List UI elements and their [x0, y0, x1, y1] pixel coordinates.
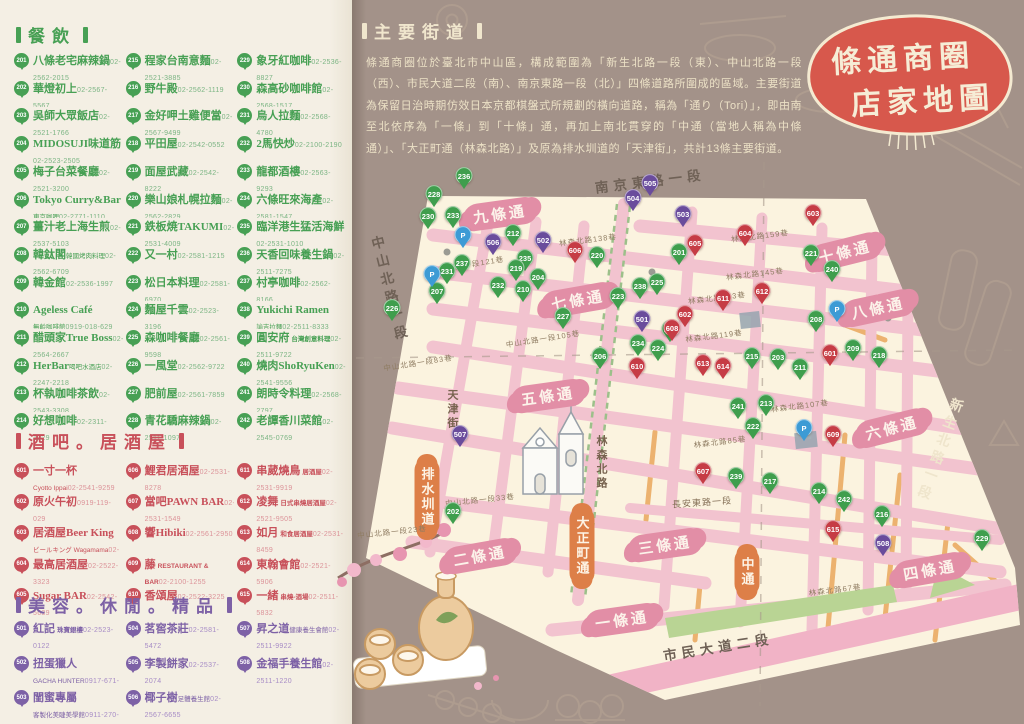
map-pin[interactable]: 506	[483, 233, 503, 259]
map-pin-number: 611	[713, 294, 733, 303]
list-item[interactable]: 218 平田屋02-2542-0552	[126, 135, 235, 163]
list-item[interactable]: 219 面屋武藏02-2542-8222	[126, 163, 235, 191]
store-name: 凌舞	[256, 496, 278, 508]
map-pin-number: 220	[587, 251, 607, 260]
store-phone: 02-2536-1997	[66, 281, 113, 288]
store-name: 吳師大眾飯店	[33, 110, 99, 122]
main-streets-description: 條通商圈位於臺北市中山區，構成範圍為「新生北路一段（東）、中山北路一段（西）、市…	[366, 53, 802, 160]
list-pin-icon: 236	[237, 247, 252, 262]
map-pin[interactable]: 609	[823, 425, 843, 451]
list-item[interactable]: 205 梅子台菜餐廳02-2521-3200	[14, 163, 123, 191]
store-name: 又一村	[145, 249, 178, 261]
list-item[interactable]: 206 Tokyo Curry&Bar東京咖哩02-2771-1110	[14, 191, 123, 219]
map-pin-number: 507	[450, 430, 470, 439]
store-name: Tokyo Curry&Bar	[33, 194, 121, 206]
list-item[interactable]: 202 華燈初上02-2567-5567	[14, 80, 123, 108]
list-item[interactable]: 504 茗窖茶莊02-2581-5472	[126, 620, 235, 655]
store-name: 金福手養生館	[256, 658, 322, 670]
store-name: MIDOSUJI味道筋	[33, 138, 121, 150]
map-pin[interactable]: 210	[513, 280, 533, 306]
map-pin-number: 213	[756, 399, 776, 408]
list-item[interactable]: 204 MIDOSUJI味道筋02-2523-2505	[14, 135, 123, 163]
map-pin-number: P	[453, 231, 473, 240]
list-item[interactable]: 242 老譚香川菜館02-2545-0769	[237, 412, 346, 440]
store-name: 野牛殿	[145, 83, 178, 95]
store-subname: 日式串燒居酒屋	[280, 500, 326, 507]
map-pin[interactable]: 615	[823, 520, 843, 546]
map-pin[interactable]: 215	[742, 347, 762, 373]
list-pin-icon: 201	[14, 53, 29, 68]
list-item[interactable]: 207 薑汁老上海生煎02-2537-5103	[14, 218, 123, 246]
store-name: 村亭咖啡	[256, 277, 300, 289]
list-item[interactable]: 508 金福手養生館02-2511-1220	[237, 655, 346, 690]
list-item[interactable]: 607 當吧PAWN BAR02-2531-1549	[126, 493, 235, 524]
map-pin[interactable]: 601	[820, 344, 840, 370]
map-pin[interactable]: 229	[972, 529, 992, 555]
title-line-2: 店家地圖	[850, 72, 996, 123]
list-pin-icon: 602	[14, 494, 29, 509]
map-pin-number: 608	[662, 324, 682, 333]
store-phone: 02-2581-1215	[178, 253, 225, 260]
list-item[interactable]: 241 朗時令料理02-2568-2797	[237, 385, 346, 413]
store-name: 松日本料理	[145, 277, 200, 289]
store-name: 面屋武藏	[145, 166, 189, 178]
list-item[interactable]: 615 一緒串燒-酒場02-2511-5832	[237, 587, 346, 618]
store-name: 好想咖啡	[33, 415, 77, 427]
map-pin-number: 612	[752, 287, 772, 296]
list-item[interactable]: 608 響Hibiki02-2561-2950	[126, 524, 235, 555]
title-bar-icon	[362, 23, 367, 39]
store-name: 龍都酒樓	[256, 166, 300, 178]
map-pin-number: 602	[675, 310, 695, 319]
map-pin-number: 239	[726, 472, 746, 481]
store-name: 朗時令料理	[256, 388, 311, 400]
list-pin-icon: 237	[237, 275, 252, 290]
map-pin-number: 215	[742, 352, 762, 361]
map-pin[interactable]: 202	[443, 502, 463, 528]
store-phone: 02-2542-0552	[178, 142, 225, 149]
list-pin-icon: 220	[126, 192, 141, 207]
map-pin-number: 609	[823, 430, 843, 439]
list-item[interactable]: 230 森高砂咖啡館02-2568-1517	[237, 80, 346, 108]
map-pin[interactable]: 208	[806, 310, 826, 336]
list-item[interactable]: 211 醋頭家True Boss02-2564-2667	[14, 329, 123, 357]
list-pin-icon: 507	[237, 621, 252, 636]
store-name: 六條旺來海產	[256, 194, 322, 206]
list-item[interactable]: 503 閨蜜專屬客製化美睫美學館0911-270-098	[14, 689, 123, 724]
store-name: 臨洋港生猛活海鮮	[256, 221, 344, 233]
list-item[interactable]: 213 杯執咖啡茶飲02-2543-3308	[14, 385, 123, 413]
store-name: 響Hibiki	[145, 527, 186, 539]
list-pin-icon: 219	[126, 164, 141, 179]
map-pin[interactable]: 606	[565, 241, 585, 267]
list-pin-icon: 239	[237, 330, 252, 345]
list-item[interactable]: 502 扭蛋獵人GACHA HUNTER0917-671-63	[14, 655, 123, 690]
section-title-dining: 餐飲	[16, 22, 88, 47]
list-pin-icon: 211	[14, 330, 29, 345]
store-name: HerBar	[33, 360, 69, 372]
map-pin-number: 604	[735, 229, 755, 238]
map-pin[interactable]: 240	[822, 260, 842, 286]
list-item[interactable]: 203 吳師大眾飯店02-2521-1766	[14, 107, 123, 135]
store-name: 藤	[145, 559, 156, 571]
section-title-beauty: 美容。休閒。精品	[16, 592, 232, 617]
map-pin[interactable]: 226	[382, 299, 402, 325]
map-pin-number: 603	[803, 209, 823, 218]
store-subtitle: GACHA HUNTER	[33, 678, 85, 685]
list-item[interactable]: 222 又一村02-2581-1215	[126, 246, 235, 274]
store-name: 森高砂咖啡館	[256, 83, 322, 95]
list-item[interactable]: 240 燒肉ShoRyuKen02-2541-9556	[237, 357, 346, 385]
map-pin-number: 601	[820, 349, 840, 358]
map-pin-number: 605	[685, 239, 705, 248]
list-item[interactable]: 231 烏人拉麵02-2568-4780	[237, 107, 346, 135]
map-pin[interactable]: 242	[834, 490, 854, 516]
store-name: 金好呷土雞便當	[145, 110, 222, 122]
store-subname: 和食居酒屋	[280, 531, 313, 538]
map-pin-number: 503	[673, 210, 693, 219]
map-pin-number: 219	[506, 264, 526, 273]
map-label: 中通	[735, 548, 760, 596]
list-item[interactable]: 209 韓金館02-2536-1997	[14, 274, 123, 302]
store-name: 平田屋	[145, 138, 178, 150]
list-pin-icon: 601	[14, 463, 29, 478]
title-bar-icon	[16, 597, 21, 613]
map-pin-number: 209	[843, 344, 863, 353]
list-pin-icon: 604	[14, 557, 29, 572]
map-pin[interactable]: 203	[768, 348, 788, 374]
list-pin-icon: 603	[14, 525, 29, 540]
title-bar-icon	[16, 27, 21, 43]
map-pin-number: 223	[608, 292, 628, 301]
list-item[interactable]: 609 藤RESTAURANT & BAR02-2100-1255	[126, 556, 235, 587]
list-pin-icon: 228	[126, 413, 141, 428]
store-name: 李製餅家	[145, 658, 189, 670]
list-item[interactable]: 505 李製餅家02-2537-2074	[126, 655, 235, 690]
list-item[interactable]: 603 居酒屋Beer Kingビールキング Wagamama02-2523-8…	[14, 524, 123, 555]
list-pin-icon: 222	[126, 247, 141, 262]
map-pin-number: 202	[443, 507, 463, 516]
list-item[interactable]: 229 象牙紅咖啡02-2536-8827	[237, 52, 346, 80]
map-pin[interactable]: 508	[873, 534, 893, 560]
store-name: 紅記	[33, 623, 55, 635]
list-pin-icon: 208	[14, 247, 29, 262]
map-pin[interactable]: 206	[590, 347, 610, 373]
list-item[interactable]: 238 Yukichi Ramen諭吉拉麵02-2511-8333	[237, 301, 346, 329]
list-item[interactable]: 614 東翰會館02-2521-5906	[237, 556, 346, 587]
store-phone: 02-2561-2950	[186, 531, 233, 538]
list-item[interactable]: 221 鉄板焼TAKUMI02-2531-4009	[126, 218, 235, 246]
store-name: 茗窖茶莊	[145, 623, 189, 635]
list-item[interactable]: 611 串葳燒鳥居酒屋02-2531-9919	[237, 462, 346, 493]
list-item[interactable]: 225 森咖啡餐廳02-2561-9598	[126, 329, 235, 357]
list-pin-icon: 205	[14, 164, 29, 179]
map-pin-number: 210	[513, 285, 533, 294]
store-name: 串葳燒鳥	[256, 465, 300, 477]
list-pin-icon: 242	[237, 413, 252, 428]
list-pin-icon: 204	[14, 136, 29, 151]
map-pin-number: 224	[648, 344, 668, 353]
list-item[interactable]: 506 椰子樹足體養生館02-2567-6655	[126, 689, 235, 724]
map-pin-number: 607	[693, 467, 713, 476]
title-bar-icon	[16, 433, 21, 449]
list-pin-icon: 223	[126, 275, 141, 290]
list-pin-icon: 230	[237, 81, 252, 96]
map-pin[interactable]: 232	[488, 276, 508, 302]
title-bar-icon	[179, 433, 184, 449]
map-pin[interactable]: P	[422, 265, 442, 291]
list-item[interactable]: 215 程家台南意麵02-2521-3885	[126, 52, 235, 80]
list-item[interactable]: 612 凌舞日式串燒居酒屋02-2521-9505	[237, 493, 346, 524]
map-pin[interactable]: 211	[790, 358, 810, 384]
list-pin-icon: 221	[126, 219, 141, 234]
store-name: 如月	[256, 527, 278, 539]
list-pin-icon: 206	[14, 192, 29, 207]
list-pin-icon: 238	[237, 302, 252, 317]
list-pin-icon: 202	[14, 81, 29, 96]
map-pin-number: 221	[801, 249, 821, 258]
map-pin-number: 506	[483, 238, 503, 247]
map-pin[interactable]: 218	[869, 346, 889, 372]
map-pin-number: 206	[590, 352, 610, 361]
list-pin-icon: 227	[126, 386, 141, 401]
map-pin-number: 501	[632, 315, 652, 324]
map-pin[interactable]: 505	[640, 174, 660, 200]
store-name: 杯執咖啡茶飲	[33, 388, 99, 400]
map-pin-number: 240	[822, 265, 842, 274]
store-name: 肥前屋	[145, 388, 178, 400]
store-name: 閨蜜專屬	[33, 692, 77, 704]
store-name: 韓鈦閣	[33, 249, 66, 261]
store-subtitle: ビールキング Wagamama	[33, 547, 108, 554]
list-item[interactable]: 220 樂山娘札幌拉麵02-2562-2829	[126, 191, 235, 219]
store-name: 鯉君居酒屋	[145, 465, 200, 477]
map-pin[interactable]: 610	[627, 357, 647, 383]
store-name: 燒肉ShoRyuKen	[256, 360, 334, 372]
list-item[interactable]: 224 麵屋千雲02-2523-3196	[126, 301, 235, 329]
map-pin[interactable]: 613	[693, 354, 713, 380]
map-label: 林森北路	[593, 435, 609, 491]
list-item[interactable]: 233 龍都酒樓02-2563-9293	[237, 163, 346, 191]
map-pin-number: 230	[418, 212, 438, 221]
store-name: 八條老宅麻辣鍋	[33, 55, 110, 67]
list-item[interactable]: 601 一寸一杯Cyotto Ippai02-2541-9259	[14, 462, 123, 493]
store-name: 居酒屋Beer King	[33, 527, 114, 539]
list-pin-icon: 225	[126, 330, 141, 345]
list-item[interactable]: 208 韓鈦閣韓國烤肉料理02-2562-6709	[14, 246, 123, 274]
list-pin-icon: 203	[14, 108, 29, 123]
map-pin[interactable]: 217	[760, 472, 780, 498]
map-pin-number: 229	[972, 534, 992, 543]
map-pin[interactable]: 216	[872, 505, 892, 531]
list-item[interactable]: 216 野牛殿02-2562-1119	[126, 80, 235, 108]
map-pin-number: 614	[713, 362, 733, 371]
main-streets-info: 主要街道 條通商圈位於臺北市中山區，構成範圍為「新生北路一段（東）、中山北路一段…	[362, 18, 806, 160]
map-pin-number: P	[794, 424, 814, 433]
list-item[interactable]: 232 2馬快炒02-2100-2190	[237, 135, 346, 163]
list-pin-icon: 501	[14, 621, 29, 636]
map-pin-number: 242	[834, 495, 854, 504]
map-pin-number: 232	[488, 281, 508, 290]
section-title-dining-text: 餐飲	[28, 22, 76, 47]
map-pin[interactable]: 225	[647, 273, 667, 299]
list-item[interactable]: 507 昇之道健康養生會館02-2511-9922	[237, 620, 346, 655]
list-pin-icon: 606	[126, 463, 141, 478]
store-name: 森咖啡餐廳	[145, 332, 200, 344]
section-title-main-streets: 主要街道	[362, 18, 806, 43]
map-pin[interactable]: 227	[553, 307, 573, 333]
store-name: 椰子樹	[145, 692, 178, 704]
map-pin[interactable]: 221	[801, 244, 821, 270]
store-name: 薑汁老上海生煎	[33, 221, 110, 233]
map-pin[interactable]: 502	[533, 231, 553, 257]
store-name: 樂山娘札幌拉麵	[145, 194, 222, 206]
list-item[interactable]: 226 一風堂02-2562-9722	[126, 357, 235, 385]
map-pin-number: 212	[503, 229, 523, 238]
list-pin-icon: 207	[14, 219, 29, 234]
list-item[interactable]: 234 六條旺來海產02-2581-1547	[237, 191, 346, 219]
list-pin-icon: 504	[126, 621, 141, 636]
dining-list: 201 八條老宅麻辣鍋02-2562-2015 202 華燈初上02-2567-…	[14, 52, 346, 440]
map-pin[interactable]: 239	[726, 467, 746, 493]
map-pin-number: 226	[382, 304, 402, 313]
map-pin-number: 613	[693, 359, 713, 368]
map-pin[interactable]: 223	[608, 287, 628, 313]
store-name: 原火午初	[33, 496, 77, 508]
map-pin[interactable]: 212	[503, 224, 523, 250]
list-pin-icon: 615	[237, 588, 252, 603]
store-name: 一緒	[256, 590, 278, 602]
map-pin[interactable]: 209	[843, 339, 863, 365]
map-pin[interactable]: 220	[587, 246, 607, 272]
map-pin[interactable]: 604	[735, 224, 755, 250]
map-label: 大正町通	[570, 507, 595, 585]
store-name: Yukichi Ramen	[256, 304, 329, 316]
store-name: 圓安府	[256, 332, 289, 344]
map-pin[interactable]: P	[453, 226, 473, 252]
map-pin[interactable]: 605	[685, 234, 705, 260]
map-pin[interactable]: 230	[418, 207, 438, 233]
map-pin[interactable]: 603	[803, 204, 823, 230]
title-bar-icon	[227, 597, 232, 613]
map-pin[interactable]: P	[827, 300, 847, 326]
store-subname: 珠寶銀樓	[57, 627, 83, 634]
store-name: 象牙紅咖啡	[256, 55, 311, 67]
list-item[interactable]: 602 原火午初0919-119-029	[14, 493, 123, 524]
list-item[interactable]: 236 天香回味養生鍋02-2511-7275	[237, 246, 346, 274]
section-title-bars-text: 酒吧。居酒屋	[28, 428, 172, 453]
store-phone: 02-2561-7859	[178, 392, 225, 399]
section-title-beauty-text: 美容。休閒。精品	[28, 592, 220, 617]
list-item[interactable]: 237 村亭咖啡02-2562-8166	[237, 274, 346, 302]
map-pin[interactable]: 501	[632, 310, 652, 336]
store-name: 華燈初上	[33, 83, 77, 95]
map-pin[interactable]: 608	[662, 319, 682, 345]
store-subname: 台灣創意料理	[291, 336, 330, 343]
list-pin-icon: 217	[126, 108, 141, 123]
list-item[interactable]: 235 臨洋港生猛活海鮮02-2531-1010	[237, 218, 346, 246]
store-name: 一風堂	[145, 360, 178, 372]
map-pin[interactable]: 214	[809, 482, 829, 508]
list-pin-icon: 229	[237, 53, 252, 68]
map-pin-number: 228	[424, 190, 444, 199]
section-title-bars: 酒吧。居酒屋	[16, 428, 184, 453]
brochure-page: 餐飲 201 八條老宅麻辣鍋02-2562-2015 202 華燈初上02-25…	[0, 0, 1024, 724]
map-pin[interactable]: 503	[673, 205, 693, 231]
store-subtitle: 足體養生館	[178, 696, 211, 703]
list-item[interactable]: 613 如月和食居酒屋02-2531-8459	[237, 524, 346, 555]
map-pin-number: 203	[768, 353, 788, 362]
list-item[interactable]: 606 鯉君居酒屋02-2531-8278	[126, 462, 235, 493]
list-pin-icon: 611	[237, 463, 252, 478]
map-pin-number: 615	[823, 525, 843, 534]
list-pin-icon: 240	[237, 358, 252, 373]
store-subname: 居酒屋	[302, 469, 322, 476]
map-pin-number: 610	[627, 362, 647, 371]
list-item[interactable]: 604 最高居酒屋02-2522-3323	[14, 556, 123, 587]
list-pin-icon: 218	[126, 136, 141, 151]
map-pin-number: 217	[760, 477, 780, 486]
list-pin-icon: 241	[237, 386, 252, 401]
list-item[interactable]: 212 HerBar喝吧水酒店02-2247-2218	[14, 357, 123, 385]
map-pin[interactable]: 614	[713, 357, 733, 383]
store-phone: 02-2541-9259	[68, 485, 115, 492]
store-name: 扭蛋獵人	[33, 658, 77, 670]
store-name: 程家台南意麵	[145, 55, 211, 67]
map-pin-number: 508	[873, 539, 893, 548]
list-item[interactable]: 501 紅記珠寶銀樓02-2523-0122	[14, 620, 123, 655]
map-pin-number: 225	[647, 278, 667, 287]
list-item[interactable]: 217 金好呷土雞便當02-2567-9499	[126, 107, 235, 135]
list-pin-icon: 234	[237, 192, 252, 207]
map-pin-number: 505	[640, 179, 660, 188]
list-item[interactable]: 239 圓安府台灣創意料理02-2511-9722	[237, 329, 346, 357]
list-pin-icon: 609	[126, 557, 141, 572]
list-item[interactable]: 223 松日本料理02-2581-6970	[126, 274, 235, 302]
store-subtitle: 健康養生會館	[289, 627, 328, 634]
brochure-title: 條通商圈 店家地圖	[795, 10, 1024, 152]
store-subtitle: 韓國烤肉料理	[66, 253, 105, 260]
map-pin[interactable]: 611	[713, 289, 733, 315]
map-pin[interactable]: 607	[693, 462, 713, 488]
main-streets-title: 主要街道	[374, 18, 470, 43]
map-pin[interactable]: 236	[454, 167, 474, 193]
list-item[interactable]: 201 八條老宅麻辣鍋02-2562-2015	[14, 52, 123, 80]
list-item[interactable]: 227 肥前屋02-2561-7859	[126, 385, 235, 413]
map-pin[interactable]: P	[794, 419, 814, 445]
list-pin-icon: 216	[126, 81, 141, 96]
list-pin-icon: 502	[14, 656, 29, 671]
list-pin-icon: 232	[237, 136, 252, 151]
map-pin[interactable]: 612	[752, 282, 772, 308]
store-name: 東翰會館	[256, 559, 300, 571]
list-item[interactable]: 210 Ageless Café無齡咖啡館0919-018-629	[14, 301, 123, 329]
title-bar-icon	[83, 27, 88, 43]
store-subtitle: 喝吧水酒店	[69, 364, 102, 371]
map-pin-number: 502	[533, 236, 553, 245]
list-pin-icon: 213	[14, 386, 29, 401]
map-pin-number: P	[827, 305, 847, 314]
list-pin-icon: 503	[14, 690, 29, 705]
map-pin[interactable]: 507	[450, 425, 470, 451]
beauty-list: 501 紅記珠寶銀樓02-2523-0122 502 扭蛋獵人GACHA HUN…	[14, 620, 346, 724]
map-pin[interactable]: 222	[743, 417, 763, 443]
list-pin-icon: 235	[237, 219, 252, 234]
list-pin-icon: 214	[14, 413, 29, 428]
list-pin-icon: 233	[237, 164, 252, 179]
map-pin-number: 208	[806, 315, 826, 324]
list-pin-icon: 607	[126, 494, 141, 509]
